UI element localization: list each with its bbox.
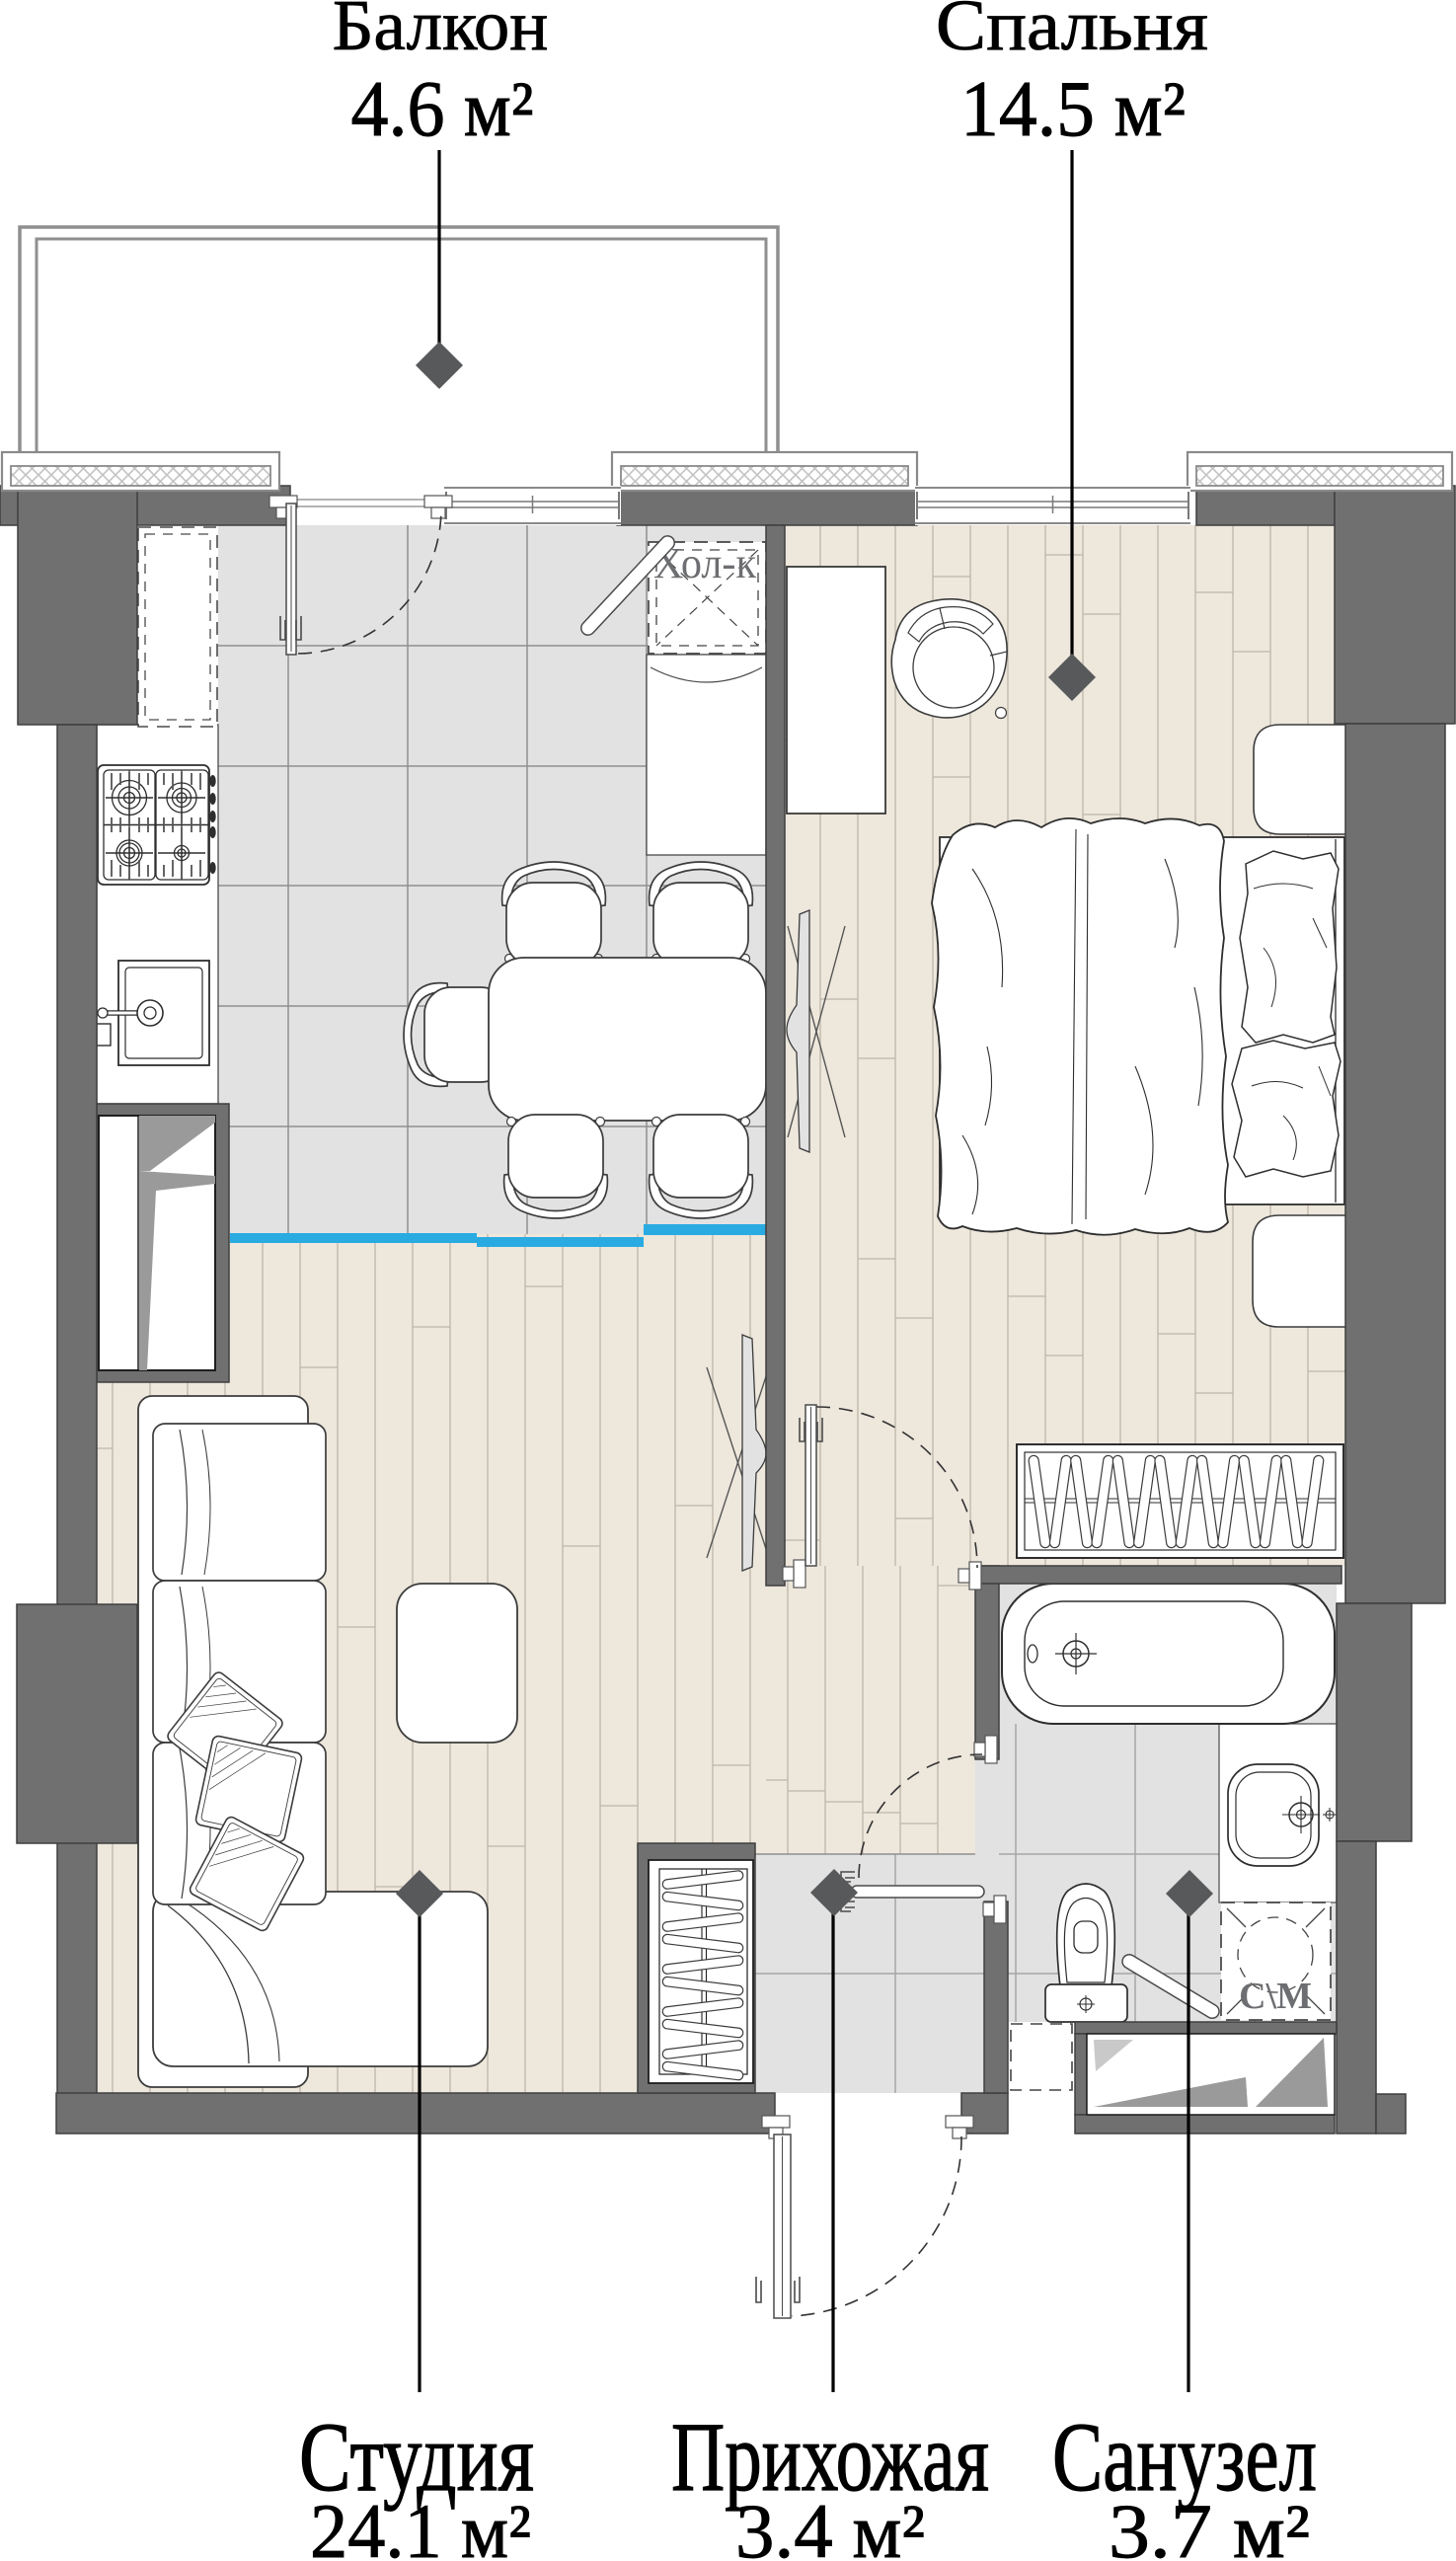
svg-text:24.1 м²: 24.1 м²	[310, 2488, 531, 2561]
svg-text:4.6 м²: 4.6 м²	[351, 66, 534, 153]
svg-text:3.7 м²: 3.7 м²	[1109, 2488, 1310, 2561]
svg-text:3.4 м²: 3.4 м²	[735, 2488, 925, 2561]
svg-text:Спальня: Спальня	[936, 0, 1208, 65]
svg-text:14.5 м²: 14.5 м²	[960, 66, 1186, 153]
svg-text:Балкон: Балкон	[333, 0, 549, 65]
svg-text:С\М: С\М	[1239, 1976, 1312, 2017]
